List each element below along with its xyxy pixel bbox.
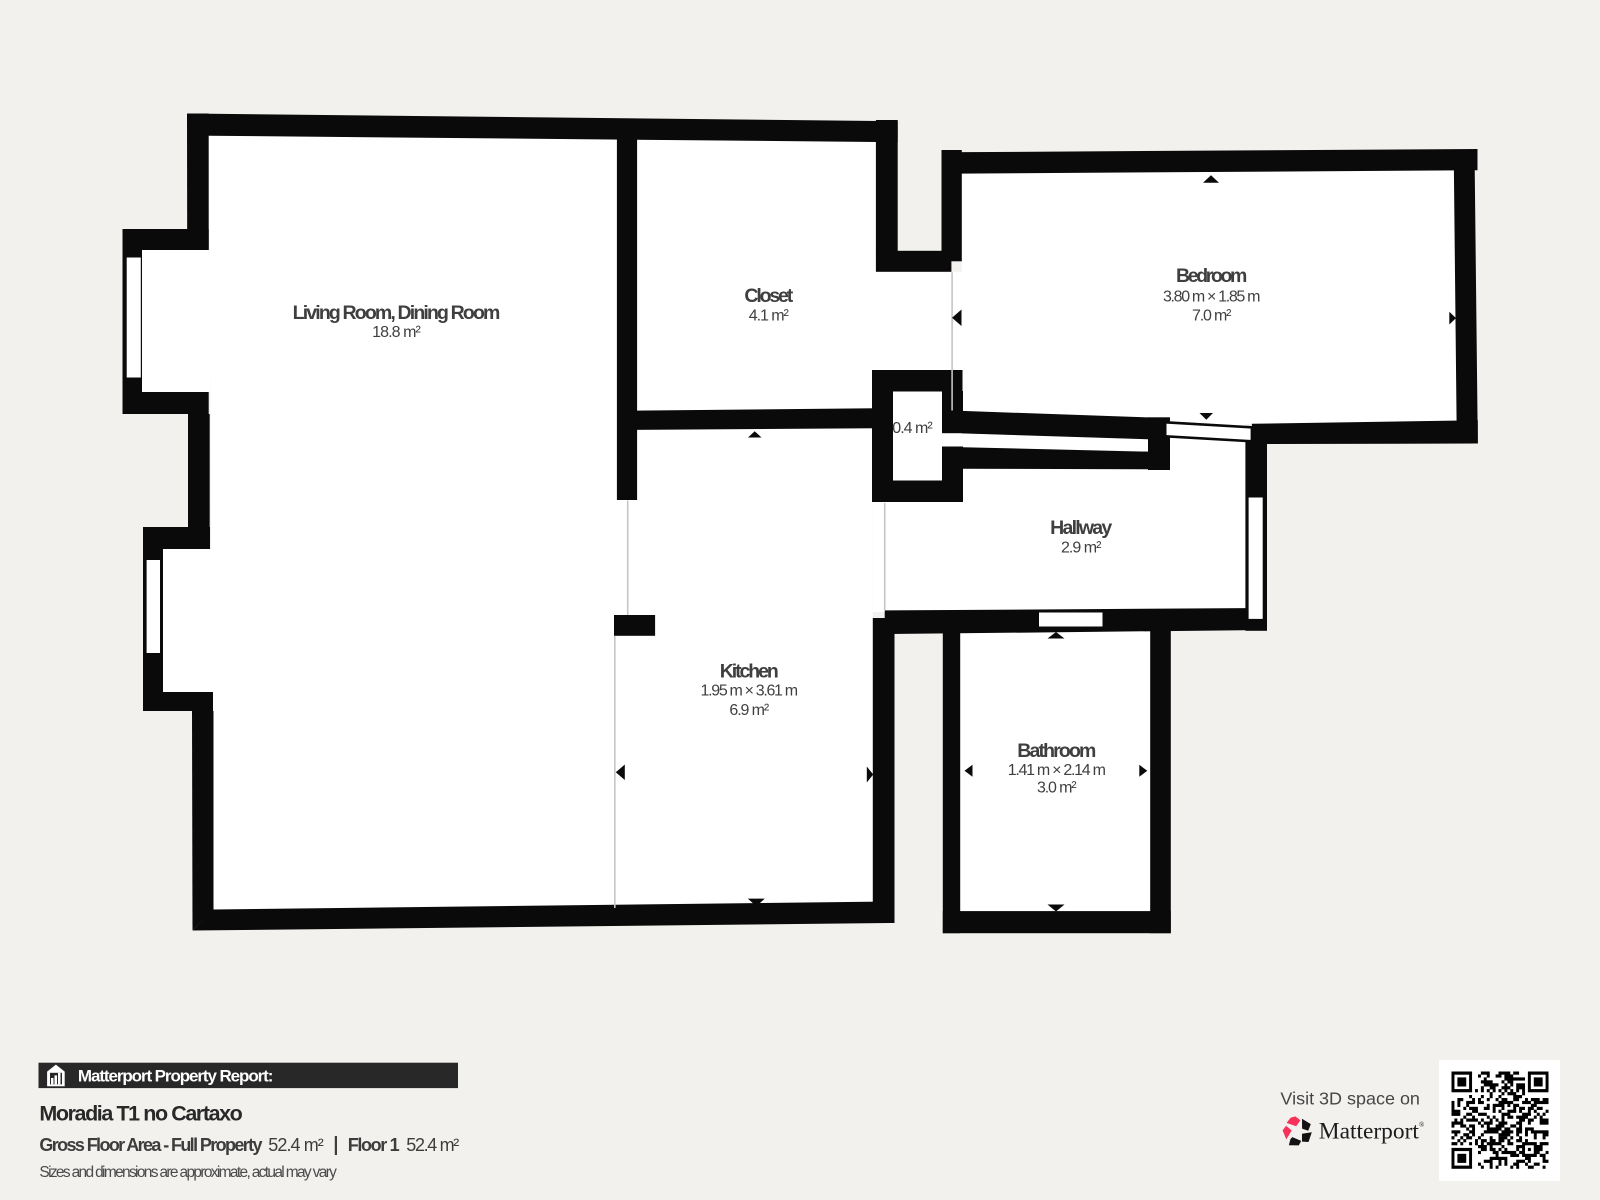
svg-text:Closet: Closet — [744, 285, 793, 307]
svg-text:6.9 m²: 6.9 m² — [729, 702, 769, 719]
svg-text:52.4 m²: 52.4 m² — [406, 1135, 459, 1155]
svg-text:Kitchen: Kitchen — [720, 660, 779, 682]
svg-text:52.4 m²: 52.4 m² — [268, 1135, 324, 1155]
svg-text:Moradia T1 no Cartaxo: Moradia T1 no Cartaxo — [39, 1102, 242, 1126]
svg-text:Living Room, Dining Room: Living Room, Dining Room — [293, 302, 501, 324]
svg-text:Bedroom: Bedroom — [1176, 265, 1247, 287]
svg-text:7.0 m²: 7.0 m² — [1192, 308, 1232, 325]
svg-text:0.4 m²: 0.4 m² — [892, 420, 933, 437]
svg-text:Hallway: Hallway — [1050, 517, 1112, 539]
svg-text:1.95 m × 3.61 m: 1.95 m × 3.61 m — [701, 683, 799, 700]
svg-text:4.1 m²: 4.1 m² — [749, 308, 790, 325]
svg-text:Visit 3D space on: Visit 3D space on — [1280, 1088, 1420, 1108]
svg-text:18.8 m²: 18.8 m² — [372, 324, 421, 341]
svg-text:Bathroom: Bathroom — [1017, 740, 1096, 762]
svg-text:Sizes and dimensions are appro: Sizes and dimensions are approximate, ac… — [39, 1164, 337, 1181]
svg-text:Gross Floor Area - Full Proper: Gross Floor Area - Full Property — [39, 1135, 262, 1155]
svg-text:3.0 m²: 3.0 m² — [1037, 780, 1077, 797]
svg-text:Matterport: Matterport — [1319, 1119, 1420, 1145]
svg-text:3.80 m × 1.85 m: 3.80 m × 1.85 m — [1163, 288, 1261, 305]
svg-text:Matterport Property Report:: Matterport Property Report: — [78, 1066, 274, 1085]
svg-text:®: ® — [1419, 1121, 1425, 1129]
svg-text:Floor 1: Floor 1 — [348, 1135, 400, 1155]
svg-text:2.9 m²: 2.9 m² — [1061, 540, 1102, 557]
svg-text:1.41 m × 2.14 m: 1.41 m × 2.14 m — [1008, 762, 1106, 779]
